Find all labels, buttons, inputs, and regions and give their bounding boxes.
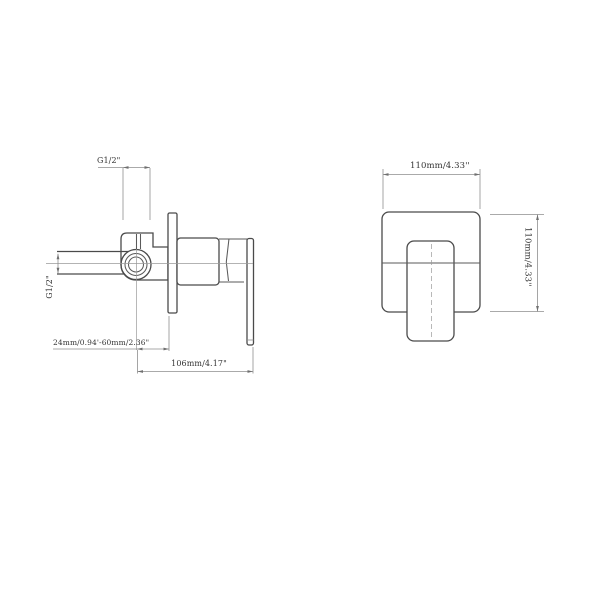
label-inlet-thread: G1/2" <box>46 275 54 298</box>
cartridge-housing <box>177 238 219 285</box>
dim-inlet-arrow-down <box>57 268 60 274</box>
label-top-port-thread: G1/2" <box>97 157 120 165</box>
dim-total-depth-arrow-right <box>248 370 254 373</box>
dim-inlet-arrow-up <box>57 254 60 259</box>
dim-depth-range-arrow-left <box>137 348 143 351</box>
wall-plate-side <box>168 213 177 313</box>
dim-top-port-arrow-left <box>123 166 129 169</box>
dim-top-port-arrow-right <box>145 166 151 169</box>
label-plate-height: 110mm/4.33'' <box>523 227 532 287</box>
handle-neck-taper <box>226 239 229 282</box>
dim-plate-width-arrow-left <box>383 173 389 176</box>
handle-lever-side <box>247 239 254 346</box>
dim-depth-range-arrow-right <box>164 348 170 351</box>
dim-top-port-line <box>98 168 150 221</box>
front-view <box>382 212 480 341</box>
handle-front <box>407 241 454 341</box>
label-wall-depth-range: 24mm/0.94'-60mm/2.36" <box>53 339 149 347</box>
side-view <box>46 213 254 350</box>
label-total-depth: 106mm/4.17" <box>171 360 227 368</box>
technical-drawing-page: G1/2" G1/2" 24mm/0.94'-60mm/2.36" 106mm/… <box>0 0 610 610</box>
label-plate-width: 110mm/4.33'' <box>410 162 470 171</box>
dim-total-depth-arrow-left <box>138 370 144 373</box>
dim-plate-width-arrow-right <box>475 173 481 176</box>
dim-plate-height-line <box>490 215 544 312</box>
dim-plate-width-line <box>383 169 480 209</box>
dim-plate-height-arrow-bottom <box>536 306 539 312</box>
inlet-pipe <box>57 252 129 275</box>
dim-plate-height-arrow-top <box>536 215 539 221</box>
drawing-linework <box>0 0 610 610</box>
